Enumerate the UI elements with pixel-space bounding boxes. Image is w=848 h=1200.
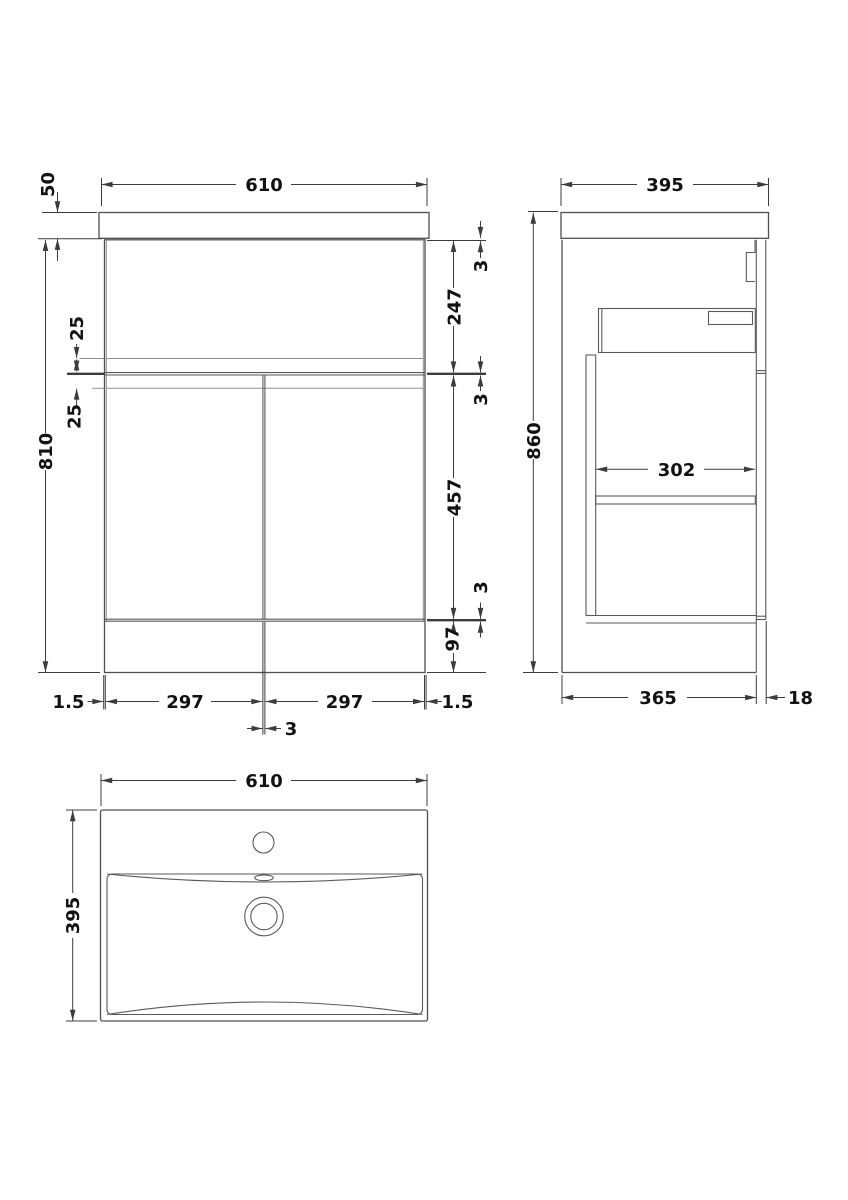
dim-internal-depth: 302 bbox=[658, 460, 696, 481]
front-worktop bbox=[99, 213, 429, 239]
technical-drawing-page: 610 50 810 25 25 3 247 bbox=[0, 0, 848, 1200]
side-section bbox=[561, 213, 769, 673]
dim-top-gap: 3 bbox=[471, 260, 492, 273]
basin-bowl-rear-slope bbox=[107, 1002, 423, 1015]
dim-left-edge-gap: 1.5 bbox=[53, 692, 85, 713]
basin-bowl-outline bbox=[107, 874, 423, 1015]
dim-right-edge-gap: 1.5 bbox=[442, 692, 474, 713]
side-worktop bbox=[561, 213, 769, 239]
dim-overall-height: 860 bbox=[524, 422, 545, 460]
vanity-dimension-drawing: 610 50 810 25 25 3 247 bbox=[0, 0, 848, 1200]
basin-plan bbox=[101, 810, 428, 1021]
dim-basin-width: 610 bbox=[245, 771, 283, 792]
dim-upper-rail-offset: 25 bbox=[67, 316, 88, 341]
dim-front-panel-thickness: 18 bbox=[788, 688, 813, 709]
dim-basin-depth: 395 bbox=[63, 897, 84, 935]
side-shelf bbox=[596, 496, 756, 504]
dim-side-depth: 395 bbox=[646, 175, 684, 196]
dim-carcass-depth: 365 bbox=[639, 688, 677, 709]
plan-dimensions: 610 395 bbox=[63, 771, 427, 1021]
dim-bottom-gap: 3 bbox=[471, 581, 492, 594]
dim-mid-gap: 3 bbox=[471, 393, 492, 406]
tap-hole bbox=[253, 832, 274, 853]
waste-drain-hole bbox=[251, 903, 277, 929]
side-drawer-box bbox=[599, 309, 756, 353]
side-dimensions: 395 860 302 365 18 bbox=[523, 175, 813, 709]
dim-center-door-gap: 3 bbox=[285, 719, 298, 740]
dim-cabinet-height: 810 bbox=[36, 433, 57, 471]
dim-left-door-width: 297 bbox=[166, 692, 204, 713]
dim-front-width: 610 bbox=[245, 175, 283, 196]
overflow-slot bbox=[255, 875, 274, 881]
dim-plinth-height: 97 bbox=[442, 626, 463, 651]
dim-right-door-width: 297 bbox=[326, 692, 364, 713]
side-service-panel bbox=[586, 355, 596, 616]
dim-drawer-front-height: 247 bbox=[444, 288, 465, 326]
dim-lower-rail-offset: 25 bbox=[64, 404, 85, 429]
dim-door-height: 457 bbox=[444, 479, 465, 517]
front-elevation bbox=[99, 213, 429, 673]
side-drawer-handle-recess bbox=[709, 312, 753, 325]
dim-worktop-height: 50 bbox=[38, 172, 59, 197]
side-basin-apron-profile bbox=[746, 240, 755, 282]
